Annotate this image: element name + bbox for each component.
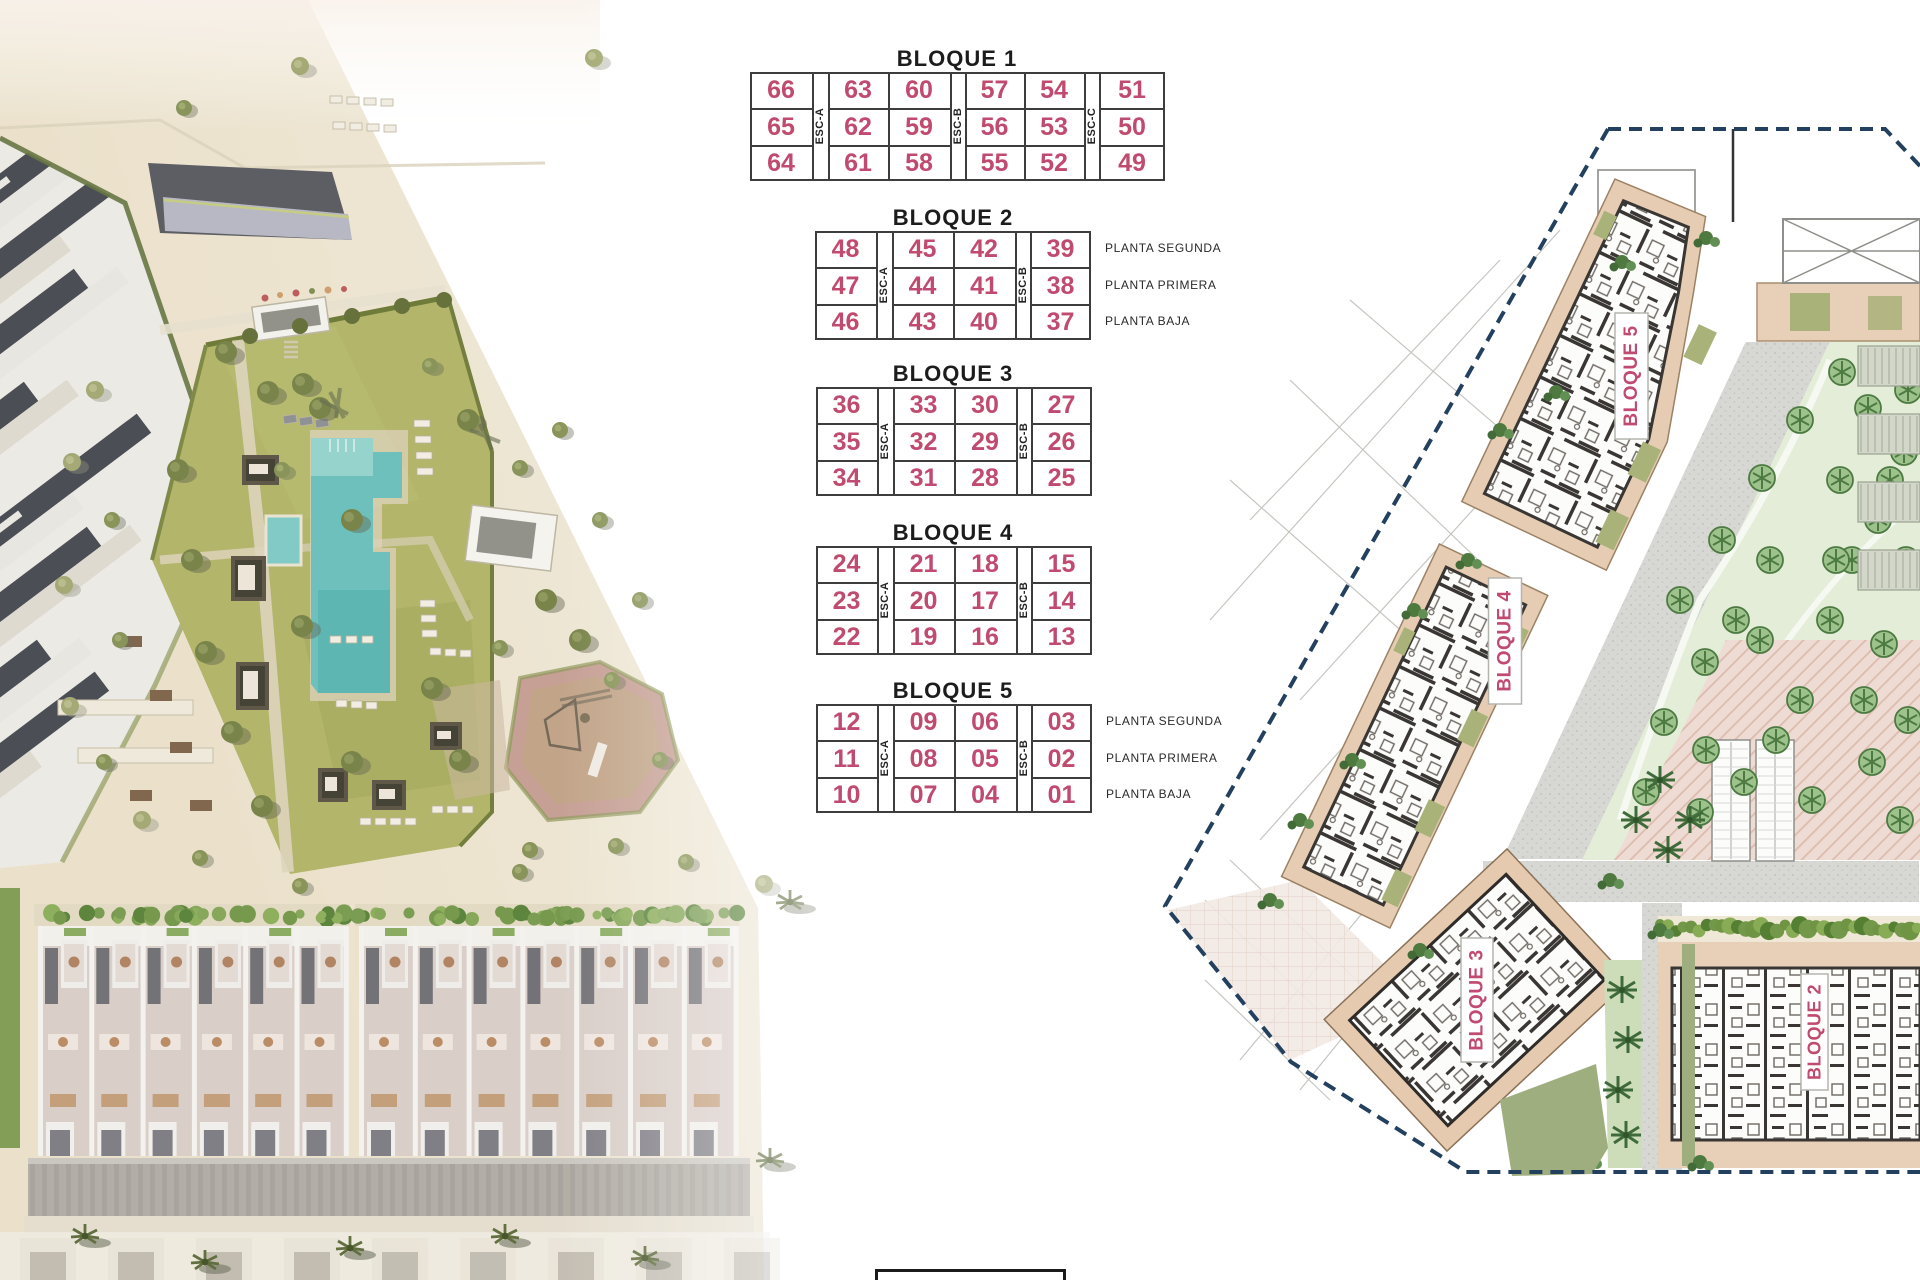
svg-text:BLOQUE 2: BLOQUE 2 xyxy=(1805,984,1825,1080)
svg-text:BLOQUE 5: BLOQUE 5 xyxy=(1621,325,1642,426)
svg-text:BLOQUE 4: BLOQUE 4 xyxy=(1495,590,1516,691)
svg-text:BLOQUE 3: BLOQUE 3 xyxy=(1467,949,1488,1050)
